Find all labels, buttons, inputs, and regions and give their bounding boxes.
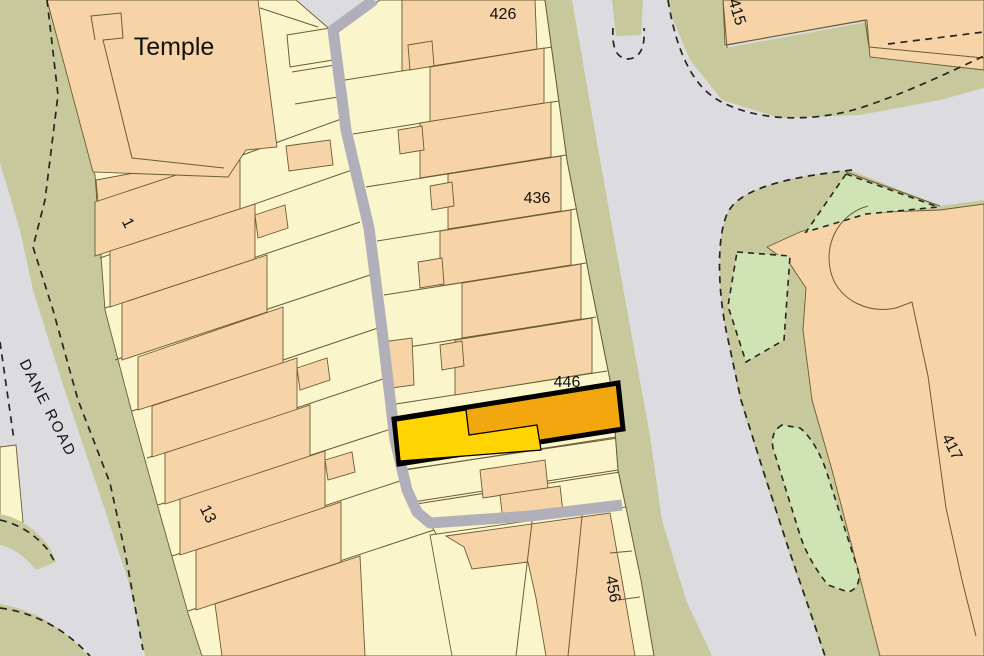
outbuilding xyxy=(440,341,464,370)
outbuilding xyxy=(398,126,424,154)
outbuilding xyxy=(418,258,444,288)
label-plot-446: 446 xyxy=(554,374,581,391)
traffic-island xyxy=(612,0,643,36)
outbuilding xyxy=(286,140,333,171)
label-temple: Temple xyxy=(134,33,215,61)
map-canvas[interactable]: Temple DANE ROAD 1 13 426 436 446 456 41… xyxy=(0,0,984,656)
map-viewport[interactable]: Temple DANE ROAD 1 13 426 436 446 456 41… xyxy=(0,0,984,656)
label-plot-436: 436 xyxy=(524,190,551,207)
outbuilding xyxy=(408,41,434,70)
outbuilding xyxy=(430,182,454,210)
label-plot-426: 426 xyxy=(490,6,517,23)
